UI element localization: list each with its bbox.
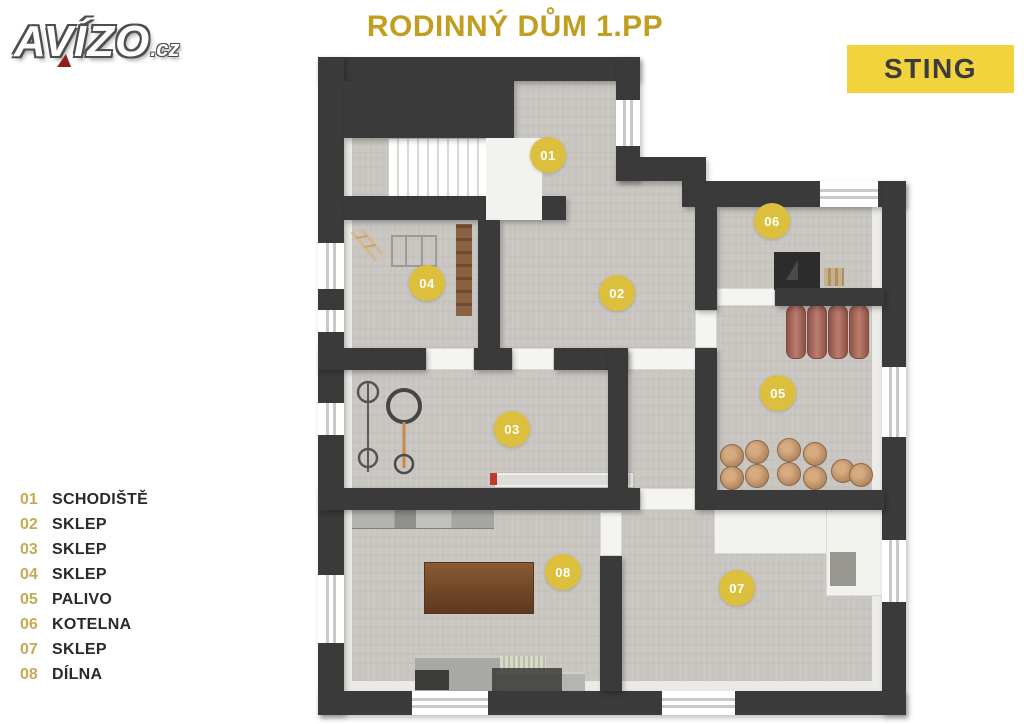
firewood-log xyxy=(777,438,801,462)
legend-item-06: 06KOTELNA xyxy=(20,612,148,637)
door-opening xyxy=(640,488,695,510)
page-title: RODINNÝ DŮM 1.PP xyxy=(330,10,700,44)
window xyxy=(662,691,735,715)
legend-label: SCHODIŠTĚ xyxy=(52,491,148,509)
legend-item-04: 04SKLEP xyxy=(20,563,148,588)
wall xyxy=(318,488,640,510)
legend-number: 07 xyxy=(20,641,52,659)
room-badge-02: 02 xyxy=(599,275,635,311)
window xyxy=(882,540,906,602)
window xyxy=(318,243,344,289)
avizo-logo-suffix: .cz xyxy=(150,36,179,61)
legend-number: 05 xyxy=(20,591,52,609)
fuel-cylinder xyxy=(849,305,869,359)
firewood-log xyxy=(849,463,873,487)
firewood-log xyxy=(777,462,801,486)
wall xyxy=(695,207,717,310)
legend-item-03: 03SKLEP xyxy=(20,538,148,563)
sting-brand-badge: STING xyxy=(847,45,1014,93)
fuel-cylinder xyxy=(807,305,827,359)
wall xyxy=(616,157,706,181)
window xyxy=(318,403,344,435)
door-opening xyxy=(695,310,717,348)
wall xyxy=(318,57,640,81)
legend-label: DÍLNA xyxy=(52,666,102,684)
room-legend: 01SCHODIŠTĚ02SKLEP03SKLEP04SKLEP05PALIVO… xyxy=(20,488,148,687)
room-badge-05: 05 xyxy=(760,375,796,411)
legend-number: 08 xyxy=(20,666,52,684)
wall xyxy=(775,288,884,306)
wall xyxy=(882,181,906,715)
wooden-ladder xyxy=(348,228,384,264)
avizo-red-triangle-icon xyxy=(57,54,73,67)
firewood-log xyxy=(803,466,827,490)
window xyxy=(318,310,344,332)
room-badge-01: 01 xyxy=(530,137,566,173)
chimney-step xyxy=(830,552,856,586)
legend-item-05: 05PALIVO xyxy=(20,588,148,613)
door-opening xyxy=(628,348,697,370)
legend-label: SKLEP xyxy=(52,641,107,659)
avizo-logo-text: AVÍZO xyxy=(14,17,150,66)
door-opening xyxy=(426,348,474,370)
wall xyxy=(478,220,500,348)
wall xyxy=(600,556,622,691)
firewood-log xyxy=(745,464,769,488)
room-badge-08: 08 xyxy=(545,554,581,590)
window xyxy=(882,367,906,437)
wall-trim xyxy=(872,207,882,687)
firewood-log xyxy=(803,442,827,466)
floor-ladder-red-tip xyxy=(490,473,497,485)
legend-label: SKLEP xyxy=(52,566,107,584)
door-opening xyxy=(512,348,554,370)
wooden-shelf xyxy=(456,224,472,316)
window xyxy=(820,181,878,207)
wall xyxy=(318,348,426,370)
wall xyxy=(474,348,512,370)
legend-item-01: 01SCHODIŠTĚ xyxy=(20,488,148,513)
firewood-log xyxy=(720,444,744,468)
wooden-table xyxy=(424,562,534,614)
legend-label: SKLEP xyxy=(52,541,107,559)
dark-machine xyxy=(415,670,449,690)
wall-trim xyxy=(344,81,352,691)
stored-items xyxy=(824,268,844,286)
door-opening xyxy=(600,512,622,556)
legend-number: 04 xyxy=(20,566,52,584)
window xyxy=(412,691,488,715)
avizo-logo: AVÍZO.cz xyxy=(14,12,244,76)
firewood-log xyxy=(720,466,744,490)
room-badge-07: 07 xyxy=(719,570,755,606)
legend-number: 01 xyxy=(20,491,52,509)
legend-item-02: 02SKLEP xyxy=(20,513,148,538)
firewood-log xyxy=(745,440,769,464)
legend-label: SKLEP xyxy=(52,516,107,534)
window xyxy=(616,100,640,146)
wall xyxy=(608,348,628,495)
workbench-machines xyxy=(352,510,494,529)
door-opening xyxy=(717,288,775,306)
window xyxy=(318,575,344,643)
legend-item-07: 07SKLEP xyxy=(20,637,148,662)
wall xyxy=(695,490,884,510)
legend-number: 06 xyxy=(20,616,52,634)
fuel-cylinder xyxy=(828,305,848,359)
fuel-cylinder xyxy=(786,305,806,359)
legend-item-08: 08DÍLNA xyxy=(20,662,148,687)
bicycles xyxy=(352,376,428,478)
legend-number: 03 xyxy=(20,541,52,559)
room-badge-04: 04 xyxy=(409,265,445,301)
wall xyxy=(318,691,906,715)
room-badge-03: 03 xyxy=(494,411,530,447)
wall xyxy=(695,348,717,493)
legend-label: PALIVO xyxy=(52,591,112,609)
room-badge-06: 06 xyxy=(754,203,790,239)
wall xyxy=(344,81,514,138)
page: AVÍZO.cz RODINNÝ DŮM 1.PP STING 01SCHODI… xyxy=(0,0,1024,724)
legend-number: 02 xyxy=(20,516,52,534)
legend-label: KOTELNA xyxy=(52,616,131,634)
dark-machine xyxy=(492,668,562,692)
boiler-face xyxy=(786,260,798,280)
